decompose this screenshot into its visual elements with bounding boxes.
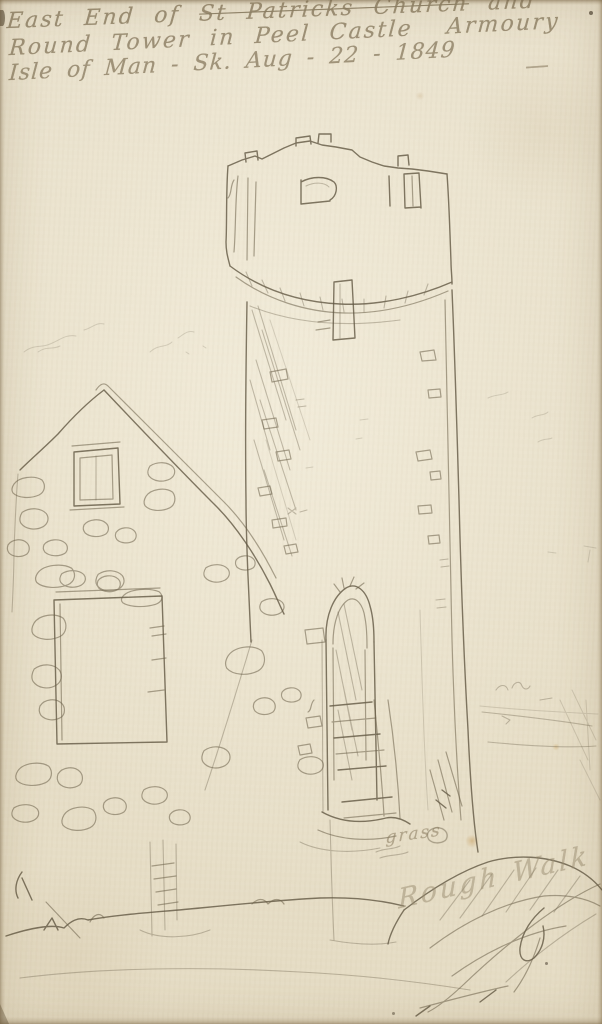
paper-speck	[392, 1012, 395, 1015]
paper-speck	[589, 11, 593, 15]
paper-speck	[545, 962, 548, 965]
paper-edge-mark	[0, 10, 5, 26]
faint-scribble	[24, 320, 600, 810]
ink-blot	[177, 527, 255, 769]
stone-blocks	[7, 463, 447, 843]
tower-shaft	[205, 280, 478, 852]
church-gable	[12, 384, 284, 937]
sketch-page: East End of St Patricks Church and Round…	[0, 0, 602, 1024]
right-wall-marks	[482, 682, 596, 746]
ground-line	[6, 846, 470, 990]
tower-parapet	[226, 134, 452, 324]
